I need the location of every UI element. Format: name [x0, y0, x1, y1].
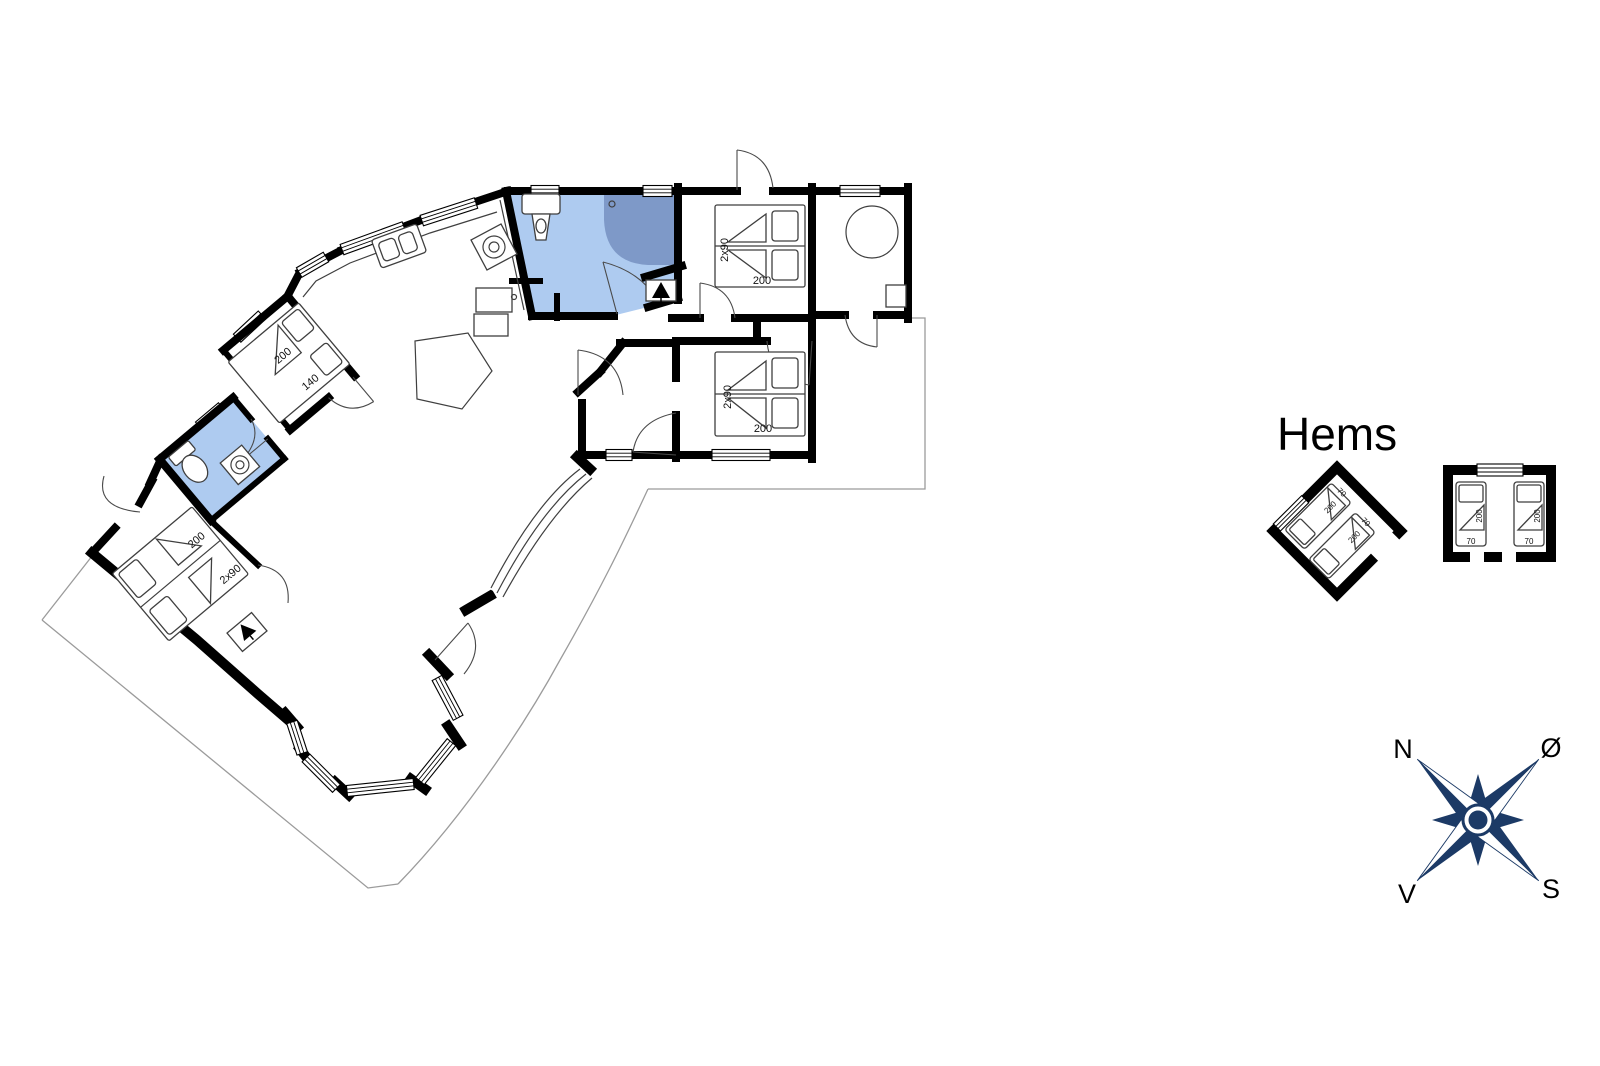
pillow [772, 250, 798, 280]
pillow [1459, 485, 1483, 502]
double-bed: 200 2x90 [112, 507, 248, 641]
pillow [772, 358, 798, 388]
bed-width-label: 70 [1467, 537, 1476, 546]
bed-width-label: 70 [1525, 537, 1534, 546]
pillow [772, 211, 798, 241]
bathroom-small [160, 398, 285, 521]
floorplan-canvas: 2x90 200 2x90 200 200 [0, 0, 1600, 1066]
water-heater-icon [846, 206, 898, 258]
kitchen-cabinet [476, 288, 512, 312]
window-icon [712, 450, 770, 461]
bed-length-label: 200 [754, 423, 772, 435]
cabinet [886, 285, 906, 307]
double-bed: 2x90 200 [715, 205, 805, 287]
bed-width-label: 2x90 [722, 385, 734, 409]
pillow [1517, 485, 1541, 502]
dining-table [415, 333, 492, 409]
bed-length-label: 200 [753, 275, 771, 287]
floorplan-page: 2x90 200 2x90 200 200 [0, 0, 1600, 1066]
window-icon [1477, 464, 1523, 476]
window-icon [302, 754, 340, 792]
window-icon [346, 779, 414, 797]
window-icon [416, 739, 456, 785]
hems-square-room: 200 70 200 70 [1448, 464, 1551, 563]
bed-length-label: 200 [1533, 509, 1542, 523]
bedroom-mid-right: 2x90 200 [715, 352, 805, 436]
bed-length-label: 200 [1475, 509, 1484, 523]
compass-north-label: N [1393, 734, 1413, 764]
single-bed: 200 70 [1514, 482, 1544, 546]
single-bed: 200 70 [1456, 482, 1486, 546]
loft-ladder-icon [227, 613, 267, 652]
entrance-door [737, 150, 773, 190]
curved-window-band [491, 469, 592, 597]
hems-rotated-room: 200 70 200 70 [1270, 464, 1405, 599]
double-bed: 200 140 [228, 303, 350, 423]
window-icon [643, 186, 672, 197]
bed-width-label: 2x90 [719, 238, 731, 262]
window-icon [606, 450, 632, 461]
window-icon [420, 198, 478, 226]
compass-south-label: S [1542, 874, 1560, 904]
window-icon [296, 252, 328, 277]
window-icon [432, 675, 463, 720]
washing-machine-icon [471, 224, 517, 270]
bedroom-top-right: 2x90 200 [715, 205, 805, 287]
compass-rose-icon: N Ø V S [1393, 733, 1561, 909]
utility-room [846, 206, 906, 307]
window-icon [287, 720, 308, 755]
loft-ladder-icon [646, 280, 676, 303]
pillow [772, 398, 798, 428]
kitchen-cabinet [474, 314, 508, 336]
double-bed: 2x90 200 [715, 352, 805, 436]
compass-west-label: V [1398, 879, 1416, 909]
window-icon [840, 186, 880, 197]
hems-section: Hems 200 70 200 70 [1270, 408, 1551, 599]
hems-title: Hems [1277, 408, 1397, 460]
compass-east-label: Ø [1540, 733, 1561, 763]
